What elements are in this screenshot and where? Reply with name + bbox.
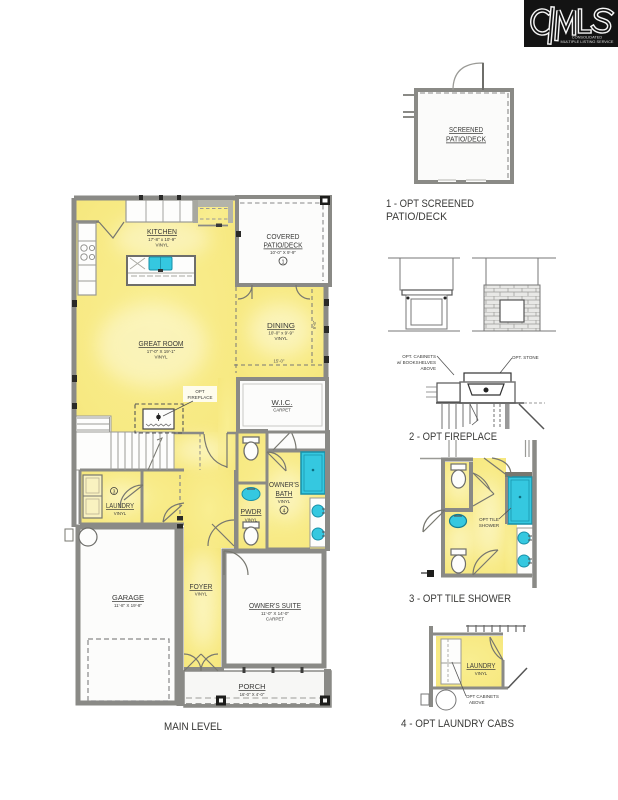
svg-text:OPT CABINETS: OPT CABINETS (466, 694, 499, 699)
svg-text:4: 4 (283, 509, 286, 515)
svg-text:VINYL: VINYL (114, 511, 127, 516)
svg-text:MULTIPLE LISTING SERVICE: MULTIPLE LISTING SERVICE (560, 39, 613, 44)
svg-text:OPT TILE: OPT TILE (479, 517, 499, 522)
svg-text:17'-8" x 10'-9": 17'-8" x 10'-9" (148, 237, 176, 242)
svg-text:10'-0" x 9'-9": 10'-0" x 9'-9" (268, 331, 294, 336)
svg-text:W.I.C.: W.I.C. (272, 400, 293, 407)
svg-text:FIREPLACE: FIREPLACE (187, 395, 212, 400)
svg-text:ABOVE: ABOVE (420, 366, 436, 371)
svg-text:11'-0" X 14'-0": 11'-0" X 14'-0" (261, 611, 289, 616)
svg-text:9'-6": 9'-6" (312, 320, 317, 329)
svg-text:PORCH: PORCH (239, 682, 266, 691)
svg-text:PATIO/DECK: PATIO/DECK (446, 135, 486, 144)
svg-text:15'-0": 15'-0" (274, 359, 285, 364)
svg-text:1: 1 (281, 260, 284, 266)
svg-text:GARAGE: GARAGE (112, 593, 144, 602)
svg-text:PATIO/DECK: PATIO/DECK (386, 211, 448, 223)
svg-text:ABOVE: ABOVE (469, 700, 485, 705)
svg-text:16'-0" X 4'-0": 16'-0" X 4'-0" (240, 692, 265, 697)
svg-text:4 - OPT LAUNDRY CABS: 4 - OPT LAUNDRY CABS (401, 718, 514, 730)
svg-text:VINYL: VINYL (154, 355, 168, 360)
svg-text:PWDR: PWDR (241, 509, 262, 516)
svg-text:SHOWER: SHOWER (479, 523, 500, 528)
svg-text:VINYL: VINYL (475, 671, 488, 676)
svg-text:CARPET: CARPET (266, 617, 285, 622)
svg-text:10'-0" X 9'-9": 10'-0" X 9'-9" (270, 250, 296, 255)
svg-text:11'-8" X 19'-8": 11'-8" X 19'-8" (114, 603, 142, 608)
svg-text:PATIO/DECK: PATIO/DECK (264, 241, 303, 250)
svg-text:w/ BOOKSHELVES: w/ BOOKSHELVES (397, 360, 436, 365)
svg-text:1 - OPT SCREENED: 1 - OPT SCREENED (386, 198, 474, 210)
svg-text:CARPET: CARPET (273, 408, 291, 413)
svg-text:MAIN LEVEL: MAIN LEVEL (164, 721, 222, 733)
svg-text:2 - OPT FIREPLACE: 2 - OPT FIREPLACE (409, 431, 497, 443)
svg-text:3: 3 (113, 490, 116, 496)
svg-text:VINYL: VINYL (245, 518, 258, 523)
svg-text:17'-0" X 19'-1": 17'-0" X 19'-1" (147, 349, 176, 354)
svg-text:SCREENED: SCREENED (449, 125, 483, 134)
svg-text:3 - OPT TILE SHOWER: 3 - OPT TILE SHOWER (409, 593, 511, 605)
svg-text:DINING: DINING (267, 323, 295, 330)
svg-text:LAUNDRY: LAUNDRY (467, 663, 496, 670)
svg-text:OPT. STONE: OPT. STONE (512, 355, 539, 360)
svg-text:OPT: OPT (195, 389, 205, 394)
svg-text:VINYL: VINYL (278, 499, 291, 504)
svg-text:VINYL: VINYL (274, 336, 288, 341)
svg-text:VINYL: VINYL (155, 243, 169, 248)
svg-text:LAUNDRY: LAUNDRY (106, 503, 134, 510)
svg-text:OWNER'S: OWNER'S (269, 482, 299, 489)
svg-text:VINYL: VINYL (195, 592, 208, 597)
svg-text:GREAT ROOM: GREAT ROOM (139, 339, 184, 348)
svg-text:KITCHEN: KITCHEN (147, 227, 177, 236)
svg-text:OWNER'S SUITE: OWNER'S SUITE (249, 601, 301, 610)
svg-text:FOYER: FOYER (190, 584, 213, 591)
svg-text:BATH: BATH (276, 491, 293, 498)
svg-text:OPT. CABINETS: OPT. CABINETS (402, 354, 436, 359)
